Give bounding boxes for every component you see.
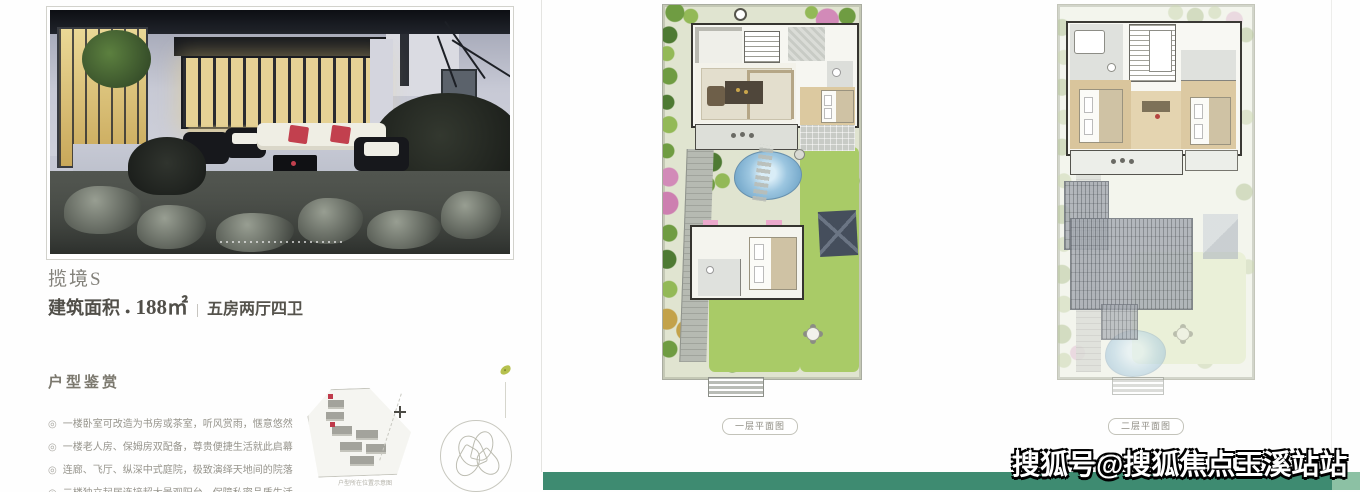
bullet-icon: ◎ <box>48 459 57 482</box>
feature-text: 一楼卧室可改造为书房或茶室，听风赏雨，惬意悠然 <box>63 413 293 436</box>
plan2-roof <box>1070 218 1194 310</box>
plan2-family-room <box>1131 91 1182 149</box>
photo-glass-doors <box>181 56 383 128</box>
villa-courtyard-photo <box>50 10 510 254</box>
plan2-stairs <box>1129 24 1176 82</box>
feature-text: 二楼独立起居连接超大景观阳台，保障私密品质生活 <box>63 482 293 492</box>
area-label: 建筑面积 <box>48 294 120 320</box>
area-value: 188㎡ <box>135 291 188 321</box>
plan2-entrance-steps <box>1112 377 1164 395</box>
compass-icon <box>394 406 406 418</box>
section-heading: 户型鉴赏 <box>48 371 120 392</box>
pipe-separator: | <box>196 302 199 319</box>
plan1-garden-suite <box>690 225 804 300</box>
floor-plan-2 <box>1057 4 1255 380</box>
bullet-icon: ◎ <box>48 413 57 436</box>
leaf-icon <box>499 364 512 375</box>
plan2-master-bedroom <box>1070 80 1131 149</box>
bullet-icon: ◎ <box>48 436 57 459</box>
plan2-label: 二层平面图 <box>1108 418 1184 435</box>
plan1-paved-court <box>800 125 855 151</box>
lotus-line-art <box>436 358 522 492</box>
panel-divider <box>541 0 542 472</box>
site-location-map <box>302 384 428 480</box>
floor-plan-1 <box>662 4 862 380</box>
plan1-pavilion-roof <box>818 210 858 257</box>
right-edge-divider <box>1331 0 1332 472</box>
bullet-icon: ◎ <box>48 482 57 492</box>
plan1-terrace <box>695 124 798 150</box>
feature-bullet: ◎ 二楼独立起居连接超大景观阳台，保障私密品质生活 <box>48 482 298 492</box>
plan2-balcony-2 <box>1185 150 1238 171</box>
plan2-bedroom-2 <box>1181 50 1236 149</box>
sohu-watermark: 搜狐号@搜狐焦点玉溪站站 <box>1012 443 1347 483</box>
feature-text: 连廊、飞厅、纵深中式庭院，极致演绎天地间的院落 <box>63 459 293 482</box>
plan2-balcony <box>1070 150 1184 174</box>
plan1-dining-table <box>707 86 725 106</box>
plan1-bedroom <box>800 87 855 124</box>
plan2-roof-annex <box>1101 304 1138 340</box>
plan1-entry-hall <box>788 27 826 61</box>
plan2-bathroom <box>1070 24 1123 80</box>
unit-title: 揽境S <box>48 264 103 291</box>
plan1-suite-bath <box>698 259 741 296</box>
plan1-living-dining <box>695 63 796 123</box>
sitemap-caption: 户型所在位置示意图 <box>313 478 417 487</box>
plan1-bathroom <box>827 61 853 87</box>
photo-sofa-arm <box>354 137 409 171</box>
rooms-value: 五房两厅四卫 <box>207 295 303 319</box>
plan1-garden-table <box>806 327 820 341</box>
plan1-entrance-steps <box>708 377 764 397</box>
page: 揽境S 建筑面积 ● 188㎡ | 五房两厅四卫 户型鉴赏 ◎ 一楼卧室可改造为… <box>0 0 1360 492</box>
feature-bullet: ◎ 连廊、飞厅、纵深中式庭院，极致演绎天地间的院落 <box>48 459 298 482</box>
dot-separator: ● <box>125 306 130 316</box>
feature-bullet: ◎ 一楼卧室可改造为书房或茶室，听风赏雨，惬意悠然 <box>48 413 298 436</box>
highlighted-unit-marker <box>330 422 335 427</box>
feature-list: ◎ 一楼卧室可改造为书房或茶室，听风赏雨，惬意悠然 ◎ 一楼老人房、保姆房双配备… <box>48 413 298 492</box>
highlighted-unit-marker <box>328 394 333 399</box>
unit-specs: 建筑面积 ● 188㎡ | 五房两厅四卫 <box>48 291 303 321</box>
feature-text: 一楼老人房、保姆房双配备，尊贵便捷生活就此启幕 <box>63 436 293 459</box>
villa-photo-frame <box>46 6 514 260</box>
plan1-kitchen <box>695 27 743 65</box>
plan1-label: 一层平面图 <box>722 418 798 435</box>
feature-bullet: ◎ 一楼老人房、保姆房双配备，尊贵便捷生活就此启幕 <box>48 436 298 459</box>
plan1-stairs <box>744 31 780 63</box>
